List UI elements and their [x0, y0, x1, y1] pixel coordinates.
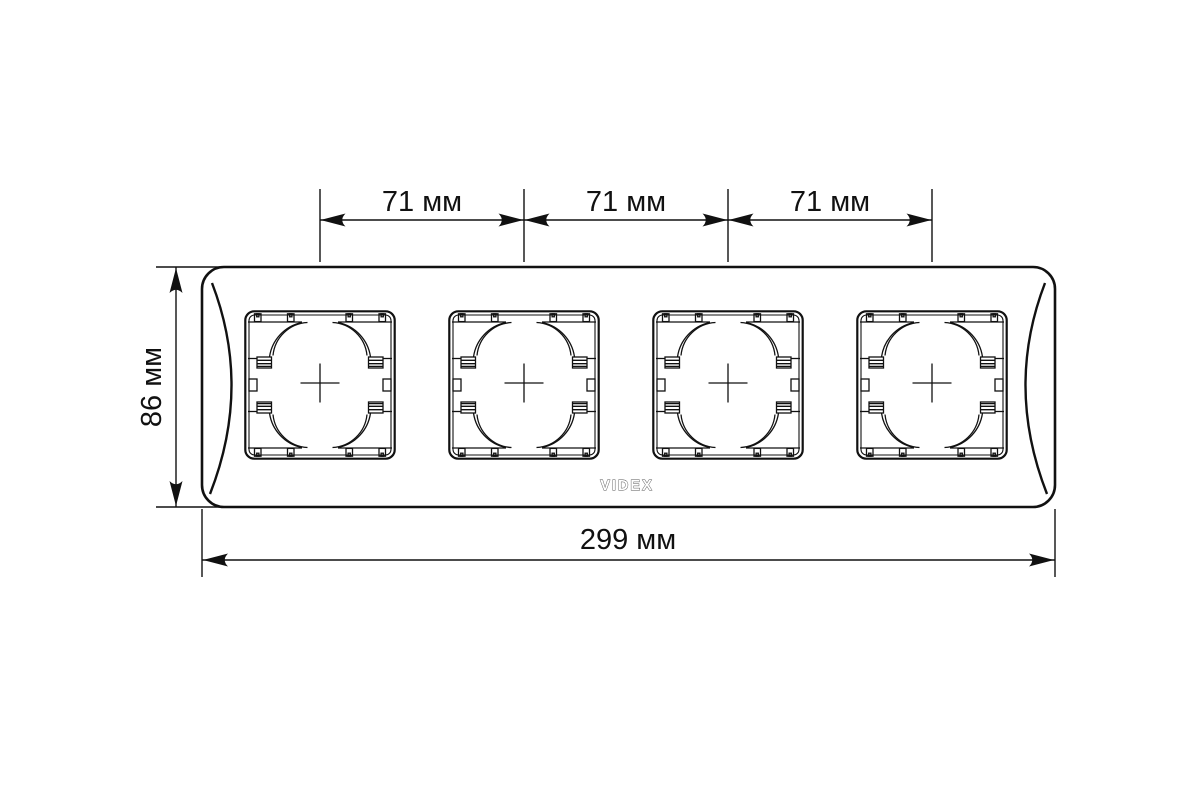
arrowhead	[1029, 554, 1054, 567]
arrowhead	[170, 481, 183, 506]
arrowhead	[203, 554, 228, 567]
arrowhead	[525, 214, 550, 227]
dimension-label-spacing-1: 71 мм	[382, 186, 462, 218]
arrowhead	[907, 214, 932, 227]
brand-logo: VIDEX	[600, 478, 654, 494]
arrowhead	[499, 214, 524, 227]
socket-opening-2	[449, 311, 598, 458]
socket-opening-4	[857, 311, 1006, 458]
dimension-label-spacing-3: 71 мм	[790, 186, 870, 218]
arrowhead	[703, 214, 728, 227]
width-dimension: 299 мм	[202, 509, 1055, 577]
dimension-label-spacing-2: 71 мм	[586, 186, 666, 218]
faceplate-frame: VIDEX	[202, 267, 1055, 507]
dimension-label-height: 86 мм	[136, 347, 168, 427]
socket-opening-3	[653, 311, 802, 458]
dimension-label-width: 299 мм	[580, 524, 676, 556]
dimension-diagram-canvas: VIDEX 71 мм 71 мм 71 мм 86 мм 299 мм	[0, 0, 1200, 800]
arrowhead	[170, 268, 183, 293]
arrowhead	[321, 214, 346, 227]
top-spacing-dimensions: 71 мм 71 мм 71 мм	[320, 186, 932, 262]
arrowhead	[729, 214, 754, 227]
socket-opening-1	[245, 311, 394, 458]
